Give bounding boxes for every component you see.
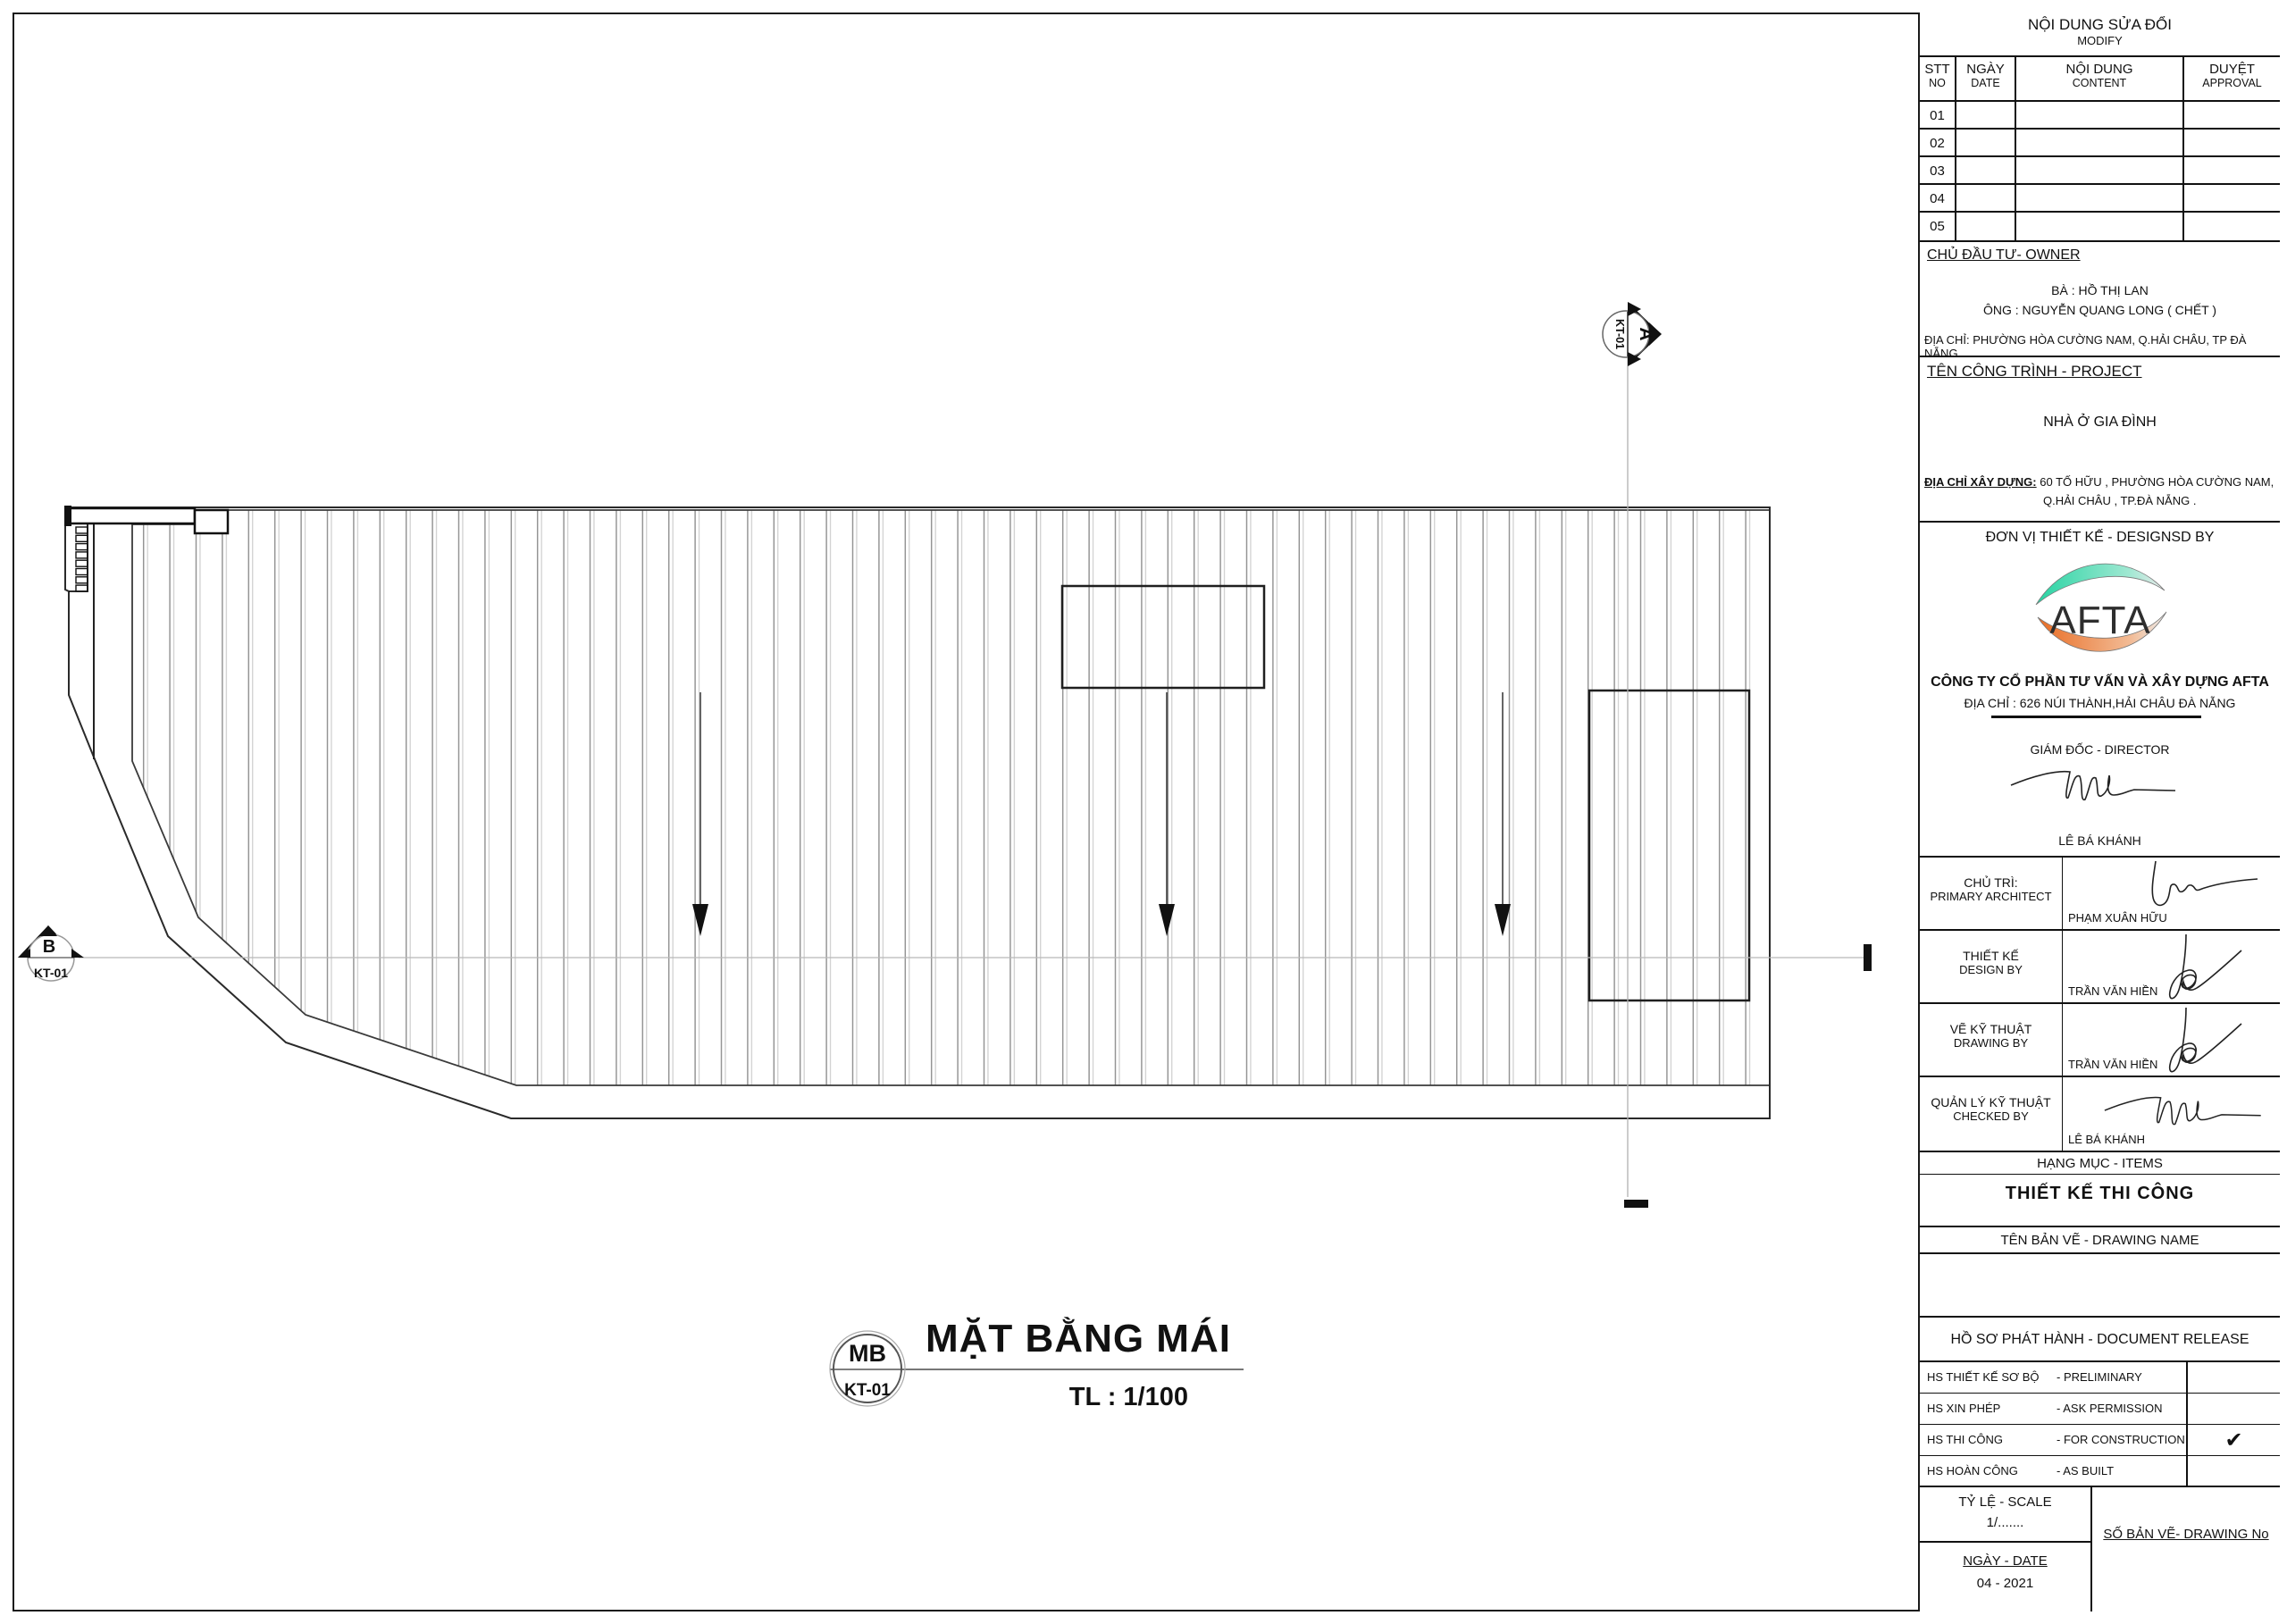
- plan-tag-bottom: KT-01: [844, 1381, 891, 1400]
- signatory-name: PHẠM XUÂN HỮU: [2068, 911, 2167, 925]
- date-value: 04 - 2021: [1920, 1576, 2090, 1591]
- items-heading: HẠNG MỤC - ITEMS: [1920, 1152, 2280, 1175]
- revision-cell: [1956, 102, 2016, 130]
- revision-row-no: 03: [1920, 157, 1956, 185]
- designer-section: ĐƠN VỊ THIẾT KẾ - DESIGNSD BY: [1920, 523, 2280, 858]
- date-label: NGÀY - DATE: [1920, 1553, 2090, 1569]
- revision-title-en: MODIFY: [1920, 34, 2280, 47]
- drawing-name-value: [1920, 1254, 2280, 1318]
- revision-row-no: 01: [1920, 102, 1956, 130]
- revision-cell: [2184, 130, 2280, 157]
- drawing-name-heading: TÊN BẢN VẼ - DRAWING NAME: [1920, 1227, 2280, 1254]
- plan-title-group: MB KT-01 MẶT BẰNG MÁI TL : 1/100: [830, 1316, 1244, 1411]
- parapet-cap: [64, 506, 71, 526]
- project-name: NHÀ Ở GIA ĐÌNH: [1920, 414, 2280, 431]
- release-row: HS THIẾT KẾ SƠ BỘ - PRELIMINARY: [1920, 1362, 2280, 1394]
- revision-cell: [1956, 213, 2016, 240]
- check-mark: ✔: [2224, 1428, 2242, 1452]
- release-row: HS HOÀN CÔNG - AS BUILT: [1920, 1456, 2280, 1487]
- signatory-row: CHỦ TRÌ: PRIMARY ARCHITECT PHẠM XUÂN HỮU: [1920, 858, 2280, 931]
- plan-tag-top: MB: [849, 1340, 886, 1367]
- revision-row-no: 05: [1920, 213, 1956, 240]
- signatory-name: LÊ BÁ KHÁNH: [2068, 1133, 2145, 1146]
- revision-table-header: NỘI DUNG SỬA ĐỔI MODIFY: [1920, 13, 2280, 57]
- ladder-detail: [69, 523, 88, 591]
- parapet-bar: [69, 508, 195, 523]
- owner-section: CHỦ ĐẦU TƯ- OWNER BÀ : HỒ THỊ LAN ÔNG : …: [1920, 240, 2280, 357]
- date-cell: NGÀY - DATE 04 - 2021: [1920, 1543, 2092, 1611]
- revision-cell: [2016, 102, 2184, 130]
- designer-address-underline: [1991, 716, 2201, 718]
- roof-hatch-area: [132, 510, 1770, 1085]
- revision-cell: [2016, 130, 2184, 157]
- revision-cell: [2016, 157, 2184, 185]
- designer-company: CÔNG TY CỔ PHẦN TƯ VẤN VÀ XÂY DỰNG AFTA: [1920, 674, 2280, 691]
- revision-col-content: NỘI DUNG CONTENT: [2016, 57, 2184, 102]
- release-check-cell: [2186, 1362, 2280, 1394]
- release-check-cell: ✔: [2186, 1425, 2280, 1456]
- drawing-sheet: A KT-01 B KT-01 MB KT-01 MẶT BẰNG MÁI: [0, 0, 2287, 1624]
- designer-heading: ĐƠN VỊ THIẾT KẾ - DESIGNSD BY: [1920, 530, 2280, 546]
- revision-row-no: 02: [1920, 130, 1956, 157]
- afta-logo: AFTA: [2031, 553, 2170, 666]
- revision-cell: [1956, 130, 2016, 157]
- section-a-letter: A: [1636, 327, 1656, 340]
- release-heading: HỒ SƠ PHÁT HÀNH - DOCUMENT RELEASE: [1920, 1318, 2280, 1362]
- signatory-row: VẼ KỸ THUẬT DRAWING BY TRẦN VĂN HIỀN: [1920, 1004, 2280, 1077]
- director-label: GIÁM ĐỐC - DIRECTOR: [1920, 742, 2280, 757]
- owner-line1: BÀ : HỒ THỊ LAN: [1920, 283, 2280, 297]
- section-b-ref: KT-01: [34, 966, 68, 980]
- revision-cell: [1956, 185, 2016, 213]
- release-row: HS XIN PHÉP - ASK PERMISSION: [1920, 1394, 2280, 1425]
- director-signature: [2009, 758, 2188, 816]
- revision-cell: [2016, 213, 2184, 240]
- project-address-line1: ĐỊA CHỈ XÂY DỰNG: 60 TỐ HỮU , PHƯỜNG HÒA…: [1924, 475, 2278, 489]
- revision-cell: [2016, 185, 2184, 213]
- title-block: NỘI DUNG SỬA ĐỔI MODIFY STT NO NGÀY DATE…: [1918, 13, 2278, 1611]
- section-marker-a: A KT-01: [1603, 302, 1662, 366]
- drawing-number-label: SỐ BẢN VẼ- DRAWING No: [2092, 1527, 2280, 1542]
- scale-value: 1/.......: [1920, 1515, 2090, 1530]
- revision-cell: [2184, 102, 2280, 130]
- revision-cell: [2184, 185, 2280, 213]
- signatory-row: QUẢN LÝ KỸ THUẬT CHECKED BY LÊ BÁ KHÁNH: [1920, 1077, 2280, 1152]
- section-a-ref: KT-01: [1613, 319, 1626, 349]
- release-check-cell: [2186, 1456, 2280, 1487]
- plan-scale: TL : 1/100: [1069, 1383, 1188, 1411]
- signatory-name: TRẦN VĂN HIỀN: [2068, 984, 2157, 998]
- owner-heading: CHỦ ĐẦU TƯ- OWNER: [1927, 247, 2081, 264]
- revision-cell: [2184, 213, 2280, 240]
- logo-text: AFTA: [2049, 599, 2150, 642]
- designer-address: ĐỊA CHỈ : 626 NÚI THÀNH,HẢI CHÂU ĐÀ NẴNG: [1920, 696, 2280, 710]
- drawing-number-cell: SỐ BẢN VẼ- DRAWING No: [2092, 1487, 2280, 1611]
- section-b-letter: B: [43, 937, 55, 957]
- revision-col-stt: STT NO: [1920, 57, 1956, 102]
- scale-label: TỶ LỆ - SCALE: [1920, 1494, 2090, 1510]
- plan-title: MẶT BẰNG MÁI: [926, 1316, 1231, 1360]
- revision-cell: [2184, 157, 2280, 185]
- release-check-cell: [2186, 1394, 2280, 1425]
- signatory-name: TRẦN VĂN HIỀN: [2068, 1058, 2157, 1071]
- release-row: HS THI CÔNG - FOR CONSTRUCTION ✔: [1920, 1425, 2280, 1456]
- director-name: LÊ BÁ KHÁNH: [1920, 833, 2280, 848]
- owner-line2: ÔNG : NGUYỄN QUANG LONG ( CHẾT ): [1920, 303, 2280, 317]
- project-section: TÊN CÔNG TRÌNH - PROJECT NHÀ Ở GIA ĐÌNH …: [1920, 357, 2280, 523]
- owner-address: ĐỊA CHỈ: PHƯỜNG HÒA CƯỜNG NAM, Q.HẢI CHÂ…: [1924, 333, 2278, 360]
- section-marker-b: B KT-01: [18, 925, 84, 981]
- project-address-line2: Q.HẢI CHÂU , TP.ĐÀ NẴNG .: [2043, 494, 2196, 507]
- revision-cell: [1956, 157, 2016, 185]
- revision-col-approval: DUYỆT APPROVAL: [2184, 57, 2280, 102]
- revision-title-vi: NỘI DUNG SỬA ĐỔI: [1920, 16, 2280, 34]
- roof-plan-drawing: A KT-01 B KT-01 MB KT-01 MẶT BẰNG MÁI: [0, 0, 1918, 1624]
- scale-cell: TỶ LỆ - SCALE 1/.......: [1920, 1487, 2092, 1543]
- top-small-box: [195, 510, 228, 533]
- signatory-row: THIẾT KẾ DESIGN BY TRẦN VĂN HIỀN: [1920, 931, 2280, 1004]
- project-heading: TÊN CÔNG TRÌNH - PROJECT: [1927, 363, 2142, 381]
- revision-row-no: 04: [1920, 185, 1956, 213]
- revision-col-date: NGÀY DATE: [1956, 57, 2016, 102]
- items-value: THIẾT KẾ THI CÔNG: [1920, 1175, 2280, 1227]
